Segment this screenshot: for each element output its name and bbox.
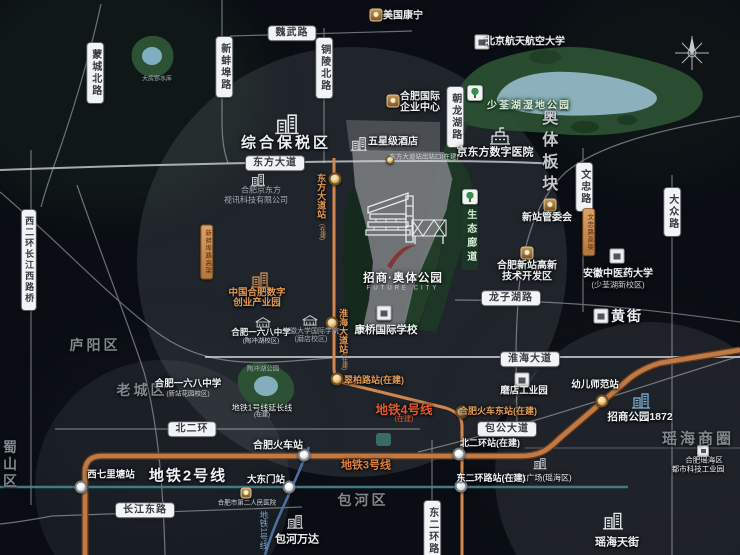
poi-hefei-international-line1: 合肥国际 <box>400 91 440 103</box>
poi-anhui-tcm-line1: 安徽中医药大学 <box>583 268 653 280</box>
anhui-university-icon <box>302 314 318 326</box>
metro-line-4-status: (在建) <box>395 416 414 424</box>
park-label-taochonghu: 陶冲湖公园 <box>247 365 280 372</box>
viaduct-badge-xinbengbu: 新蚌埠路高架 <box>201 226 212 279</box>
poi-hefei-international-line2: 企业中心 <box>400 102 440 114</box>
road-label-dongfang-avenue: 东方大道 <box>246 156 304 170</box>
road-label-xierhuan-bridge: 西二环长江西路桥 <box>22 210 36 310</box>
district-label-baohe: 包河区 <box>338 492 389 508</box>
poi-baohe-wanda: 包河万达 <box>275 534 319 547</box>
poi-bonded-zone: 综合保税区 <box>241 134 331 151</box>
poi-boe-visual-line2: 视讯科技有限公司 <box>224 195 288 204</box>
project-name: 招商·奥体公园 <box>363 272 443 285</box>
station-label-dongfang-avenue: 东方大道站 <box>316 174 326 219</box>
station-dot-dongfang-avenue <box>329 173 342 186</box>
poi-xinzhan-hitech-line1: 合肥新站高新 <box>497 260 557 272</box>
bonded-zone-buildings-icon <box>274 111 300 135</box>
xinzhan-committee-icon <box>544 199 557 212</box>
wanda-plaza-buildings-icon <box>533 457 548 470</box>
road-label-longzihu: 龙子湖路 <box>482 291 540 305</box>
second-hospital-icon <box>241 488 252 499</box>
poi-yaohai-tianjie: 瑶海天街 <box>595 537 639 550</box>
road-label-baogong-avenue: 包公大道 <box>478 422 536 436</box>
road-label-huaihai-avenue: 淮海大道 <box>501 352 559 366</box>
station-label-dadongmen: 大东门站 <box>247 476 285 487</box>
poi-yaohai-industrial-line2: 都市科技工业园 <box>672 466 725 475</box>
poi-five-star-hotel: 五星级酒店 <box>368 136 418 148</box>
station-dot-youer-shifan <box>596 395 609 408</box>
road-label-changjiang-east: 长江东路 <box>116 503 174 517</box>
kangqiao-school-icon <box>377 306 392 321</box>
boe-visual-buildings-icon <box>250 172 266 186</box>
park-label-eco-corridor: 生态廊道 <box>462 204 478 270</box>
poi-modian-industrial: 磨店工业园 <box>500 387 548 398</box>
poi-xinzhan-hitech-line2: 技术开发区 <box>502 271 552 283</box>
road-label-wenzhong: 文忠路 <box>576 163 592 211</box>
station-label-huaihai-avenue: 淮海大道站 <box>338 309 348 354</box>
poi-school168-xinzhan: 合肥一六八中学 <box>155 380 222 391</box>
hotel-buildings-icon <box>350 135 368 151</box>
compass-icon <box>675 36 709 70</box>
station-label-youer-shifan: 幼儿师范站 <box>571 381 619 392</box>
station-dot-cuibai-road <box>331 373 344 386</box>
china-digital-buildings-icon <box>250 270 270 288</box>
wetland-park-tree-icon <box>467 85 483 101</box>
corning-icon <box>370 9 383 22</box>
station-label-dongerhuan: 东二环路站(在建) <box>457 473 526 483</box>
poi-school168-taochong-campus: (陶冲湖校区) <box>243 337 280 344</box>
road-label-dazhong: 大众路 <box>664 188 680 236</box>
poi-second-hospital: 合肥市第二人民医院 <box>218 499 277 506</box>
park-label-dafangying: 大房郢水库 <box>142 77 172 84</box>
station-label-beierhuan: 北二环站(在建) <box>460 438 520 448</box>
station-status-dongfang: (在建) <box>318 224 325 240</box>
road-label-dongerhuan: 东二环路 <box>424 501 440 555</box>
road-label-tongling: 铜陵北路 <box>316 38 332 98</box>
boe-hospital-icon <box>488 127 512 146</box>
road-label-beierhuan: 北二环 <box>169 422 216 436</box>
poi-boe-hospital: 京东方数字医院 <box>457 147 534 160</box>
yaohai-tianjie-buildings-icon <box>602 510 624 530</box>
district-label-shushan: 蜀山区 <box>2 440 18 491</box>
poi-anhui-tcm-line2: (少荃湖新校区) <box>591 280 644 289</box>
poi-zhaoshang-1872: 招商公园1872 <box>607 411 672 423</box>
baohe-wanda-buildings-icon <box>286 513 304 529</box>
road-label-weiwu: 魏武路 <box>269 26 316 40</box>
poi-anhui-university-line2: (磨店校区) <box>295 336 328 344</box>
hefei-location-map: 魏武路 东方大道 龙子湖路 淮海大道 北二环 包公大道 长江东路 蒙城北路 新蚌… <box>0 0 740 555</box>
anhui-tcm-icon <box>610 249 625 264</box>
project-name-en: FUTURE CITY <box>367 286 440 293</box>
poi-xinzhan-committee: 新站管委会 <box>522 212 572 224</box>
metro-line-2-label: 地铁2号线 <box>149 467 227 484</box>
station-label-cuibai: 翠柏路站(在建) <box>344 375 404 385</box>
poi-huang-street: 黄街 <box>611 308 643 324</box>
poi-kangqiao-school: 康桥国际学校 <box>355 324 418 336</box>
road-label-mengcheng: 蒙城北路 <box>87 43 103 103</box>
station-status-huaihai: (在建) <box>340 354 347 370</box>
poi-china-digital-line2: 创业产业园 <box>233 299 281 310</box>
station-label-xiqilitang: 西七里塘站 <box>87 471 135 482</box>
poi-anhui-university-line1: 安徽大学国际学院 <box>283 328 339 336</box>
hefei-international-icon <box>387 95 400 108</box>
station-label-hefei-railway: 合肥火车站 <box>253 440 303 452</box>
station-label-hefei-east: 合肥火车东站(在建) <box>459 406 537 416</box>
metro-line-1-ext-label: 地铁1号线延长线 <box>232 403 292 412</box>
zhaoshang-1872-buildings-icon <box>631 391 651 409</box>
metro-line-1-label: 地铁1号线 <box>258 511 268 550</box>
xinzhan-hitech-icon <box>521 247 534 260</box>
station-dot-beierhuan <box>453 448 466 461</box>
district-label-yaohai-business: 瑶海商圈 <box>662 430 734 447</box>
zone-label-aoti-block: 奥体板块 <box>538 109 556 197</box>
huang-street-icon <box>594 309 609 324</box>
station-label-dongfang-exit: 东方大道站出站口(在建) <box>389 153 458 160</box>
road-label-chaolonghu: 朝龙湖路 <box>447 87 463 147</box>
station-dot-xiqilitang <box>75 481 88 494</box>
poi-corning: 美国康宁 <box>383 10 423 22</box>
poi-beihang: 北京航天航空大学 <box>485 36 565 48</box>
district-label-luyang: 庐阳区 <box>70 337 121 353</box>
metro-line-1-ext-status: (在建) <box>254 413 270 420</box>
poi-boe-visual-line1: 合肥京东方 <box>241 185 281 194</box>
eco-corridor-tree-icon <box>462 189 478 205</box>
poi-school168-xinzhan-campus: (新站花园校区) <box>166 390 209 397</box>
metro-line-3-label: 地铁3号线 <box>341 460 391 473</box>
viaduct-badge-wenzhong: 文忠路高架 <box>583 209 594 255</box>
road-label-xinbengbu: 新蚌埠路 <box>216 37 232 97</box>
park-label-shaoquanhu: 少荃湖湿地公园 <box>487 100 571 112</box>
